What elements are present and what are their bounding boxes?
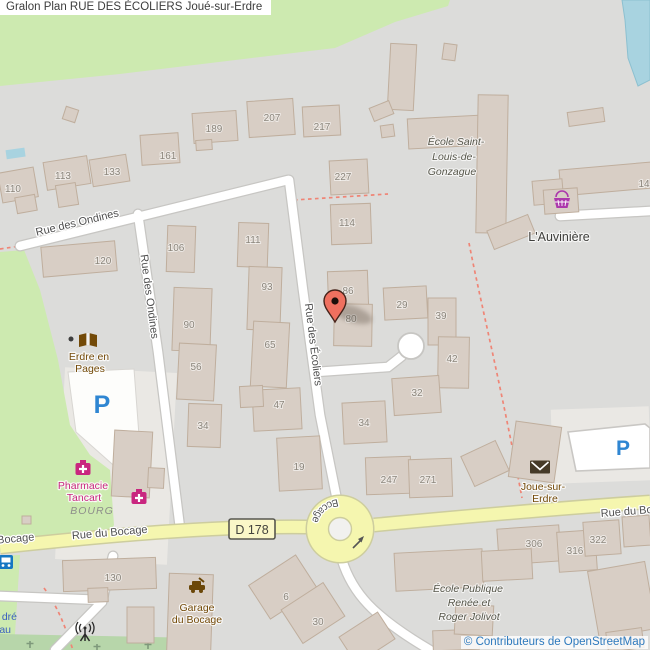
building	[111, 430, 152, 498]
osm-attribution-link[interactable]: © Contributeurs de OpenStreetMap	[461, 636, 648, 649]
library-label-line2: Pages	[75, 363, 105, 375]
school-public-line1: École Publique	[433, 582, 503, 595]
house-number: 111	[245, 235, 261, 246]
road-lane-spur	[0, 596, 102, 600]
map-canvas[interactable]: D 178 1892072171611131331102271141061111…	[0, 0, 650, 650]
house-number: 93	[261, 282, 273, 293]
house-number: 133	[104, 167, 121, 178]
house-number: 130	[105, 573, 122, 584]
building	[250, 321, 289, 388]
library-label-line1: Erdre en	[69, 351, 109, 363]
roundabout-island	[329, 518, 352, 541]
house-number: 6	[283, 592, 289, 603]
building	[15, 194, 37, 213]
house-number: 110	[5, 184, 21, 195]
cul-de-sac-circle	[398, 333, 424, 359]
house-number: 217	[314, 122, 331, 133]
school-slg-line3: Gonzague	[428, 166, 477, 178]
house-number: 47	[273, 400, 285, 411]
house-number: 316	[567, 546, 584, 557]
house-number: 32	[411, 388, 423, 399]
school-slg-line1: École Saint-	[428, 135, 485, 148]
page-title: Gralon Plan RUE DES ÉCOLIERS Joué-sur-Er…	[0, 0, 271, 15]
house-number: 114	[339, 218, 355, 229]
garage-label-line2: du Bocage	[172, 614, 222, 626]
building	[588, 561, 650, 638]
house-number: 247	[381, 475, 398, 486]
building	[88, 588, 108, 603]
house-number: 106	[168, 243, 185, 254]
building	[442, 43, 457, 61]
school-slg-line2: Louis-de-	[432, 151, 476, 163]
pharmacy-label-line1: Pharmacie	[58, 480, 108, 492]
building	[387, 43, 416, 110]
partial-blue-label-1: dré	[2, 611, 17, 623]
house-number: 34	[358, 418, 370, 429]
building	[127, 607, 154, 643]
school-public-line2: Renée et	[448, 597, 492, 609]
house-number: 271	[420, 475, 437, 486]
parking-p-right: P	[616, 437, 630, 460]
house-number: 29	[396, 300, 408, 311]
building	[247, 266, 282, 330]
house-number: 120	[95, 256, 112, 267]
school-public-line3: Roger Jolivot	[438, 611, 500, 623]
building	[476, 95, 508, 234]
house-number: 227	[335, 172, 352, 183]
house-number: 19	[293, 462, 305, 473]
house-number: 30	[312, 617, 324, 628]
house-number: 42	[446, 354, 458, 365]
road-shield-label: D 178	[235, 523, 268, 537]
building	[196, 139, 213, 150]
house-number: 34	[197, 421, 209, 432]
road-shield-d178: D 178	[229, 519, 275, 539]
building	[22, 516, 31, 524]
building	[380, 124, 395, 138]
parking-p-left: P	[94, 391, 111, 419]
house-number: 39	[435, 311, 447, 322]
post-office-envelope-icon	[530, 461, 550, 474]
building	[508, 421, 561, 483]
building	[147, 468, 164, 489]
house-number: 90	[183, 320, 195, 331]
place-label-bourg: BOURG	[70, 505, 114, 517]
house-number: 306	[526, 539, 543, 550]
house-number: 14	[638, 179, 650, 190]
post-label-line1: Joue-sur-	[521, 481, 566, 493]
house-number: 189	[206, 124, 223, 135]
pharmacy-label-line2: Tancart	[67, 492, 102, 504]
marker-pin-dot	[331, 297, 338, 304]
house-number: 113	[55, 171, 71, 182]
house-number: 56	[190, 362, 202, 373]
house-number: 322	[590, 535, 607, 546]
garage-label-line1: Garage	[179, 602, 214, 614]
place-label-auviniere: L'Auvinière	[528, 230, 589, 244]
building	[239, 385, 263, 407]
parking-area-right	[568, 424, 650, 471]
house-number: 207	[264, 113, 281, 124]
building	[481, 549, 533, 582]
map-screenshot: D 178 1892072171611131331102271141061111…	[0, 0, 650, 650]
poi-dot	[69, 337, 74, 342]
partial-blue-label-2: au	[0, 624, 11, 636]
post-label-line2: Erdre	[532, 493, 558, 505]
house-number: 161	[160, 151, 177, 162]
building	[55, 183, 78, 208]
house-number: 65	[264, 340, 276, 351]
building	[622, 515, 650, 547]
bus-stop-icon	[0, 555, 13, 569]
